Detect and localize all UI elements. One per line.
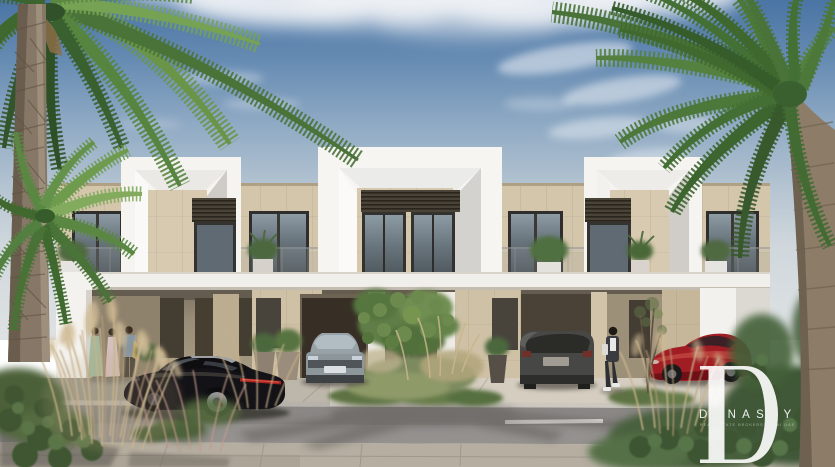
- svg-text:REAL ESTATE BROKERS DUBAI UAE: REAL ESTATE BROKERS DUBAI UAE: [700, 423, 795, 427]
- svg-text:DYNASTY: DYNASTY: [699, 409, 797, 421]
